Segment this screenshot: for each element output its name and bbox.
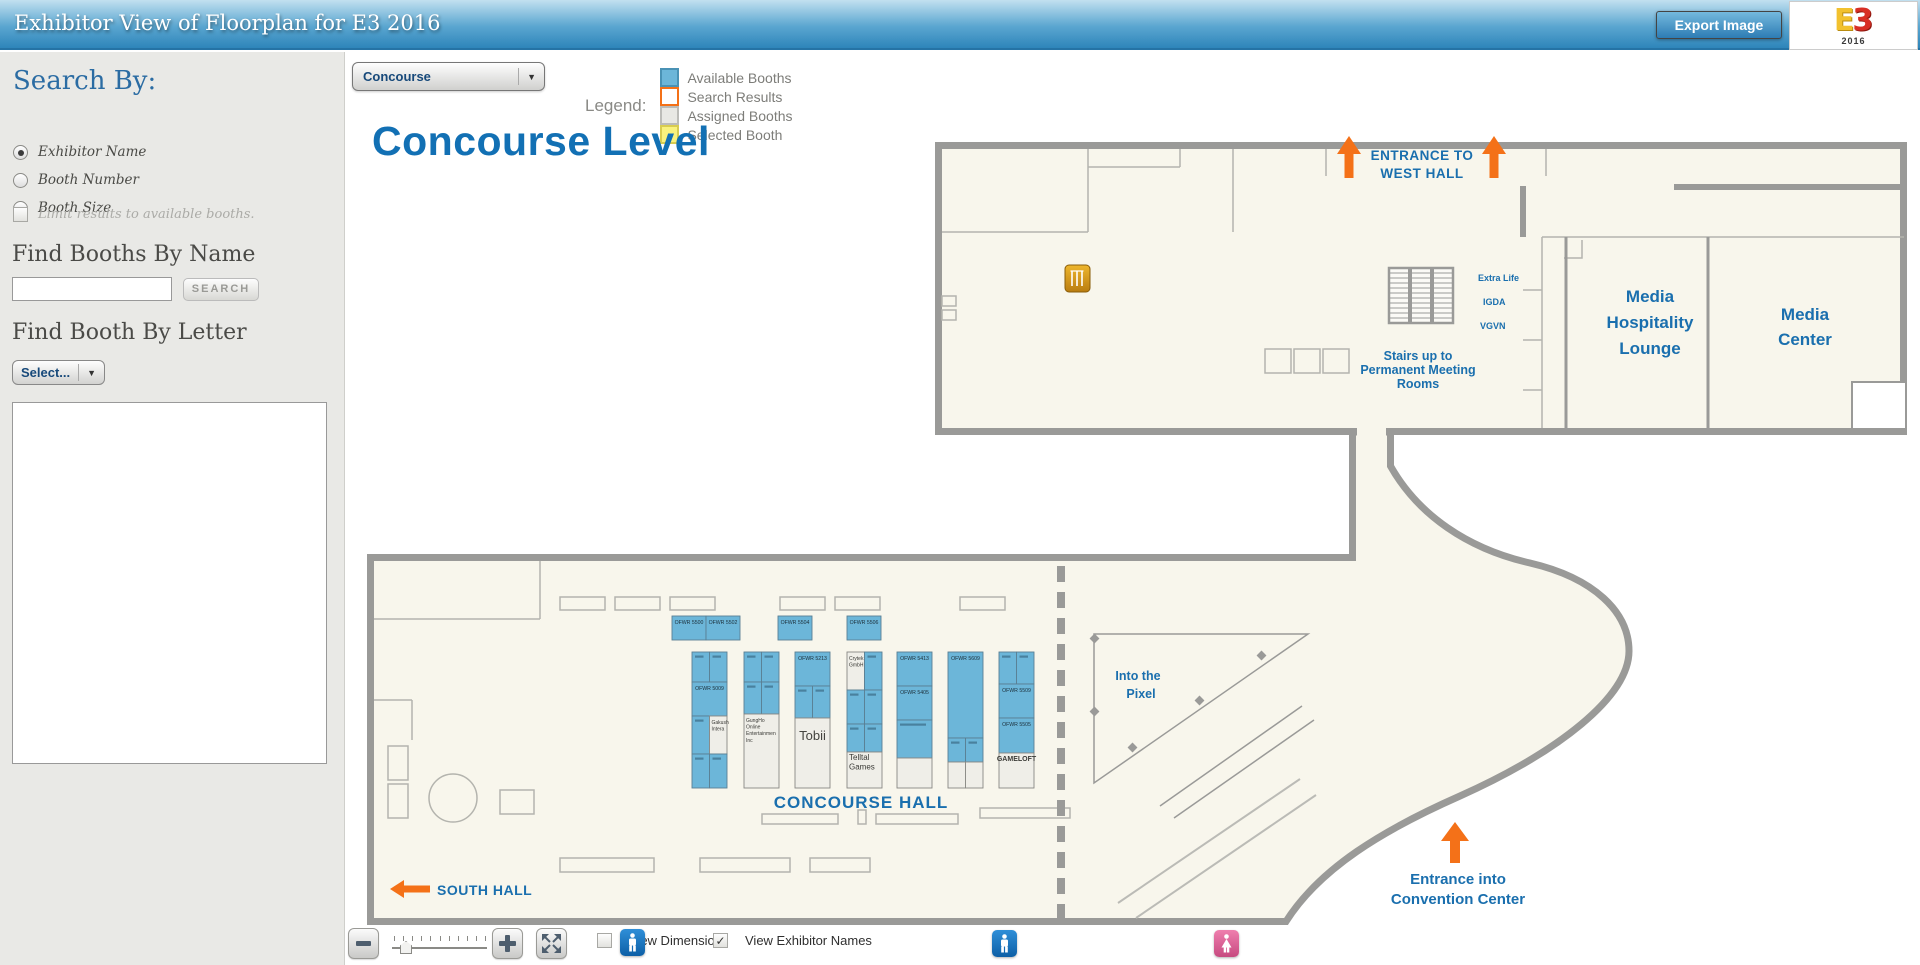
- exhibitor-name-label: Inc: [746, 738, 753, 744]
- food-court-icon: [1065, 265, 1090, 292]
- zoom-slider[interactable]: [392, 930, 487, 958]
- booth-number-label: OFWR 5506: [850, 620, 879, 626]
- mens-restroom-icon: [992, 930, 1017, 957]
- womens-restroom-icon: [1214, 930, 1239, 957]
- svg-text:Permanent Meeting: Permanent Meeting: [1360, 363, 1475, 377]
- booth-number-label: OFWR 5502: [709, 620, 738, 626]
- entrance-west-label: ENTRANCE TO: [1371, 148, 1474, 163]
- svg-text:Hospitality: Hospitality: [1607, 313, 1694, 332]
- exhibitor-name-label: Online: [746, 725, 761, 731]
- extra-life-label: Extra Life: [1478, 273, 1519, 283]
- page-title: Exhibitor View of Floorplan for E3 2016: [14, 11, 440, 35]
- media-lounge-label: Media: [1626, 287, 1675, 306]
- zoom-in-button[interactable]: [492, 928, 523, 959]
- concourse-hall-area: OFWR 5500OFWR 5502OFWR 5504OFWR 5506OFWR…: [371, 424, 1630, 922]
- export-image-button[interactable]: Export Image: [1656, 11, 1782, 39]
- view-dimensions-checkbox[interactable]: [597, 933, 612, 948]
- convention-entrance-arrow: [1441, 822, 1469, 863]
- radio-label: Booth Number: [38, 172, 139, 188]
- zoom-out-button[interactable]: [348, 928, 379, 959]
- svg-text:Pixel: Pixel: [1126, 687, 1155, 701]
- search-button[interactable]: SEARCH: [183, 278, 259, 301]
- booth-number-label: OFWR 5405: [900, 690, 929, 696]
- find-booth-by-letter-heading: Find Booth By Letter: [12, 320, 247, 345]
- exhibitor-name-label: Gakush: [712, 720, 729, 726]
- view-exhibitor-names-label: View Exhibitor Names: [745, 933, 872, 948]
- logo-3: 3: [1852, 3, 1873, 38]
- stairs-icon: [1389, 268, 1453, 323]
- plus-icon: [499, 935, 516, 952]
- booth-number-label: OFWR 5509: [1002, 688, 1031, 694]
- media-center-label: Media: [1781, 305, 1830, 324]
- view-exhibitor-names-toggle[interactable]: ✓ View Exhibitor Names: [713, 933, 872, 948]
- booth[interactable]: [948, 762, 966, 788]
- booth[interactable]: [966, 762, 984, 788]
- booth-number-label: OFWR 5609: [951, 656, 980, 662]
- booth[interactable]: [897, 758, 932, 788]
- zoom-slider-thumb[interactable]: [400, 941, 412, 954]
- search-results-listbox[interactable]: [12, 402, 327, 764]
- search-sidebar: Search By: Exhibitor NameBooth NumberBoo…: [0, 52, 345, 965]
- igda-label: IGDA: [1483, 297, 1506, 307]
- convention-entrance-label: Entrance into: [1410, 871, 1506, 888]
- e3-logo: E3 2016: [1789, 1, 1918, 50]
- exhibitor-name-label: Crytek: [849, 656, 864, 662]
- stairs-label: Stairs up to: [1384, 349, 1453, 363]
- south-hall-label: SOUTH HALL: [437, 882, 532, 898]
- search-by-heading: Search By:: [13, 66, 156, 96]
- limit-results-checkbox[interactable]: [13, 207, 28, 222]
- limit-results-label: Limit results to available booths.: [38, 207, 255, 222]
- exhibitor-name-label: GungHo: [746, 718, 765, 724]
- exhibitor-name-label: Tobii: [799, 728, 826, 743]
- radio-circle[interactable]: [13, 145, 28, 160]
- find-booths-by-name-heading: Find Booths By Name: [12, 242, 255, 267]
- radio-circle[interactable]: [13, 173, 28, 188]
- svg-text:Center: Center: [1778, 330, 1832, 349]
- concourse-hall-label: CONCOURSE HALL: [774, 793, 949, 812]
- limit-results-row[interactable]: Limit results to available booths.: [13, 207, 255, 222]
- logo-year: 2016: [1841, 36, 1865, 46]
- exhibitor-name-label: GAMELOFT: [997, 756, 1037, 763]
- header-bar: Exhibitor View of Floorplan for E3 2016: [0, 0, 1920, 50]
- svg-text:Rooms: Rooms: [1397, 377, 1439, 391]
- booth[interactable]: [948, 652, 983, 738]
- radio-booth-number[interactable]: Booth Number: [13, 172, 139, 188]
- fit-view-button[interactable]: [536, 928, 567, 959]
- floorplan-canvas[interactable]: OFWR 5500OFWR 5502OFWR 5504OFWR 5506OFWR…: [345, 55, 1920, 965]
- minus-icon: [356, 941, 371, 946]
- vgvn-label: VGVN: [1480, 321, 1506, 331]
- booth-number-label: OFWR 5505: [1002, 722, 1031, 728]
- booth-number-label: OFWR 5009: [695, 686, 724, 692]
- view-dimensions-toggle[interactable]: View Dimensions: [597, 933, 728, 948]
- into-the-pixel-label: Into the: [1115, 669, 1160, 683]
- booth-number-label: OFWR 5413: [900, 656, 929, 662]
- svg-text:Convention Center: Convention Center: [1391, 891, 1525, 908]
- letter-select-dropdown[interactable]: Select... ▼: [12, 360, 105, 385]
- exhibitor-name-label: Intera: [712, 727, 725, 733]
- svg-text:Lounge: Lounge: [1619, 339, 1680, 358]
- booth-number-label: OFWR 5213: [798, 656, 827, 662]
- radio-exhibitor-name[interactable]: Exhibitor Name: [13, 144, 146, 160]
- mens-restroom-icon: [620, 929, 645, 956]
- letter-select-value: Select...: [13, 365, 78, 380]
- expand-arrows-icon: [542, 934, 561, 953]
- booth-name-input[interactable]: [12, 277, 172, 301]
- exhibitor-name-label: GmbH: [849, 663, 864, 669]
- exhibitor-name-label: Telltal: [849, 753, 870, 762]
- exhibitor-name-label: Entertainmen: [746, 731, 776, 737]
- booth-number-label: OFWR 5500: [675, 620, 704, 626]
- view-exhibitor-names-checkbox[interactable]: ✓: [713, 933, 728, 948]
- radio-label: Exhibitor Name: [38, 144, 146, 160]
- booth-number-label: OFWR 5504: [781, 620, 810, 626]
- svg-text:WEST HALL: WEST HALL: [1380, 166, 1463, 181]
- exhibitor-name-label: Games: [849, 763, 875, 772]
- chevron-down-icon: ▼: [79, 368, 104, 378]
